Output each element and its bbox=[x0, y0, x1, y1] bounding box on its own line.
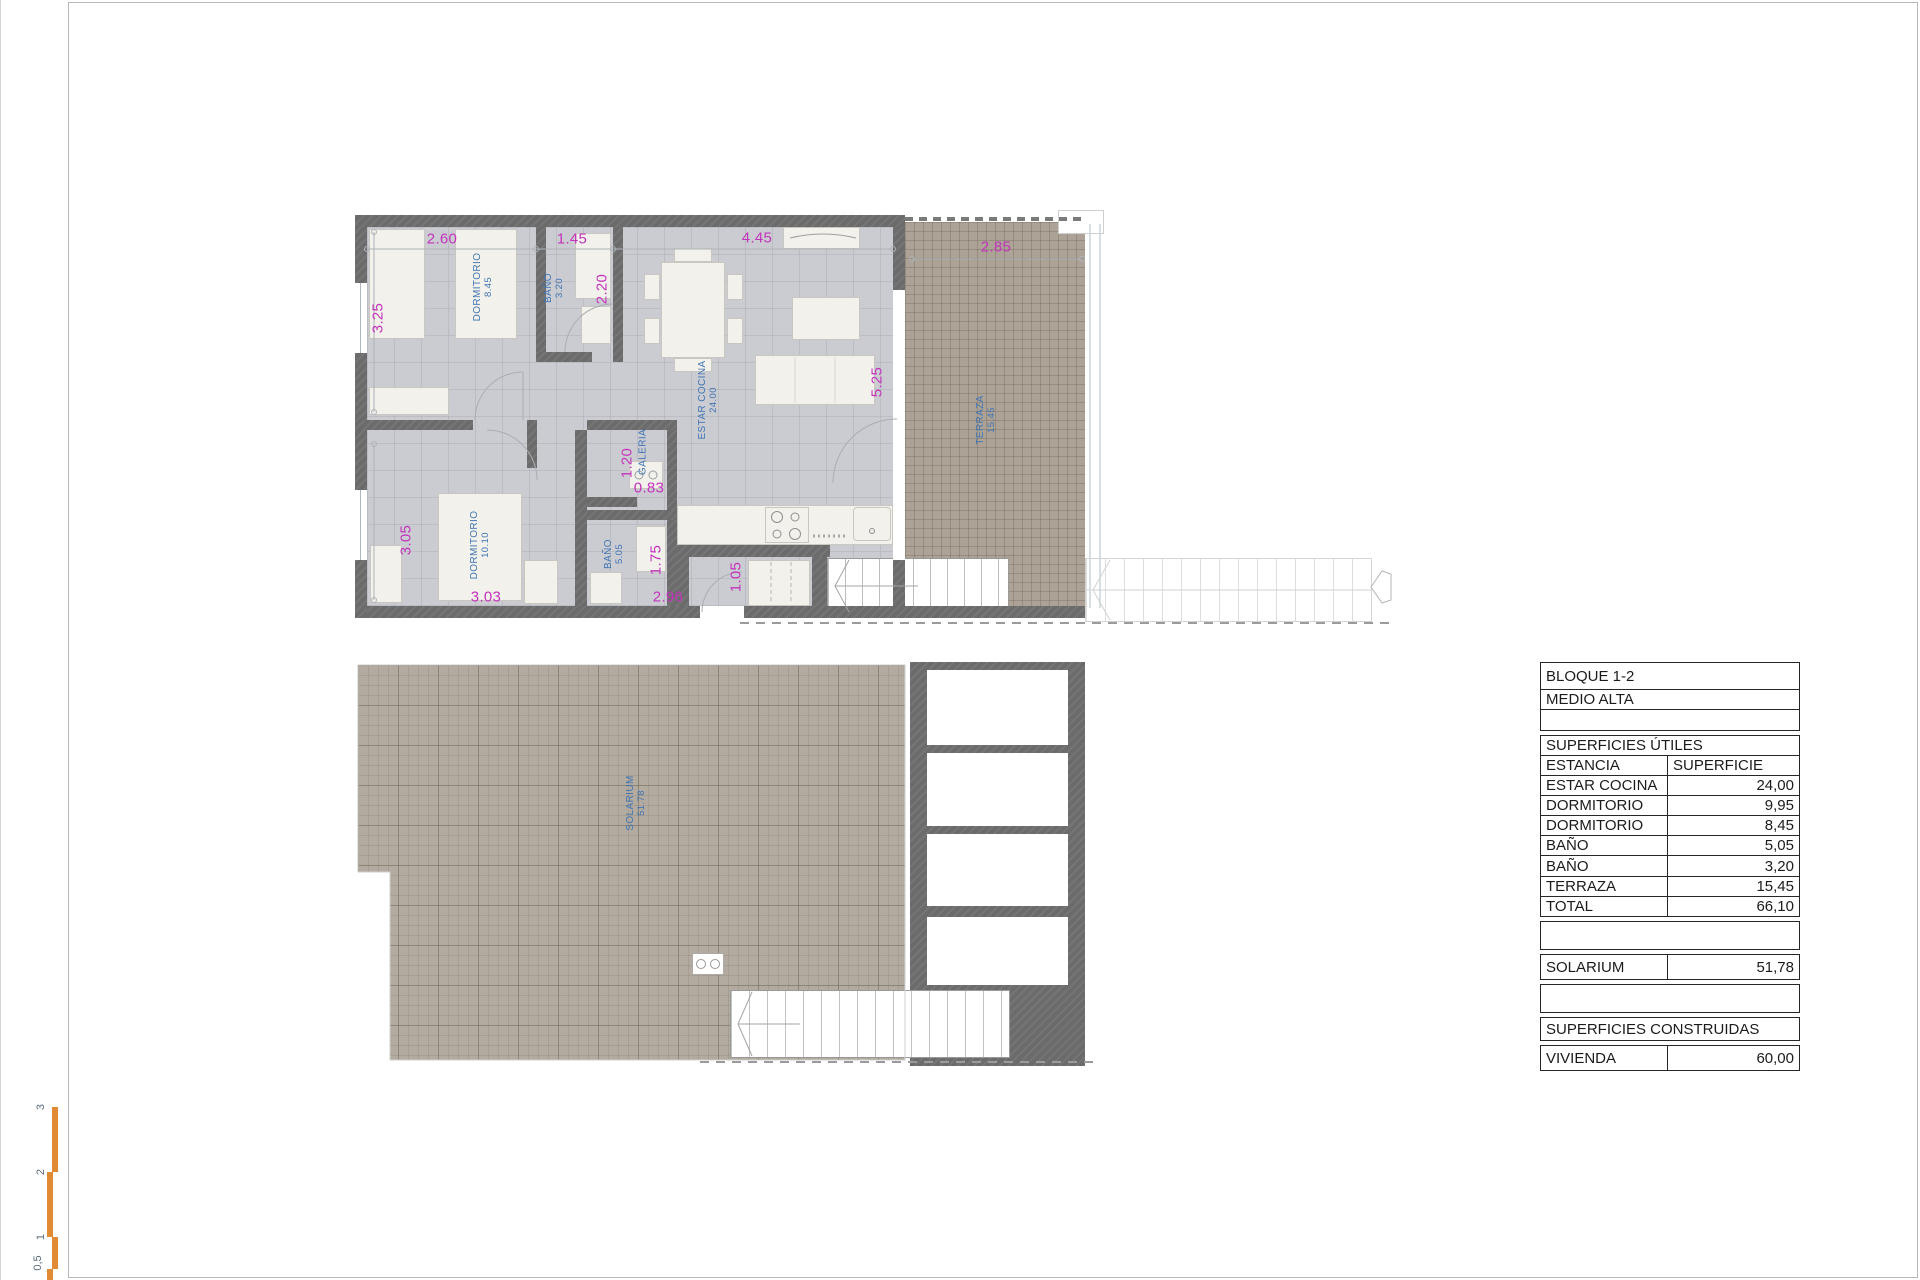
dining-table bbox=[661, 262, 725, 358]
dimension-text: 3.05 bbox=[398, 525, 415, 555]
wall bbox=[677, 545, 830, 557]
terrace-corner-box bbox=[1058, 210, 1104, 234]
scale-segment bbox=[47, 1172, 53, 1237]
table-empty-row bbox=[1540, 984, 1800, 1013]
dimension-text: 1.75 bbox=[648, 545, 665, 575]
upper-floor-plan bbox=[0, 0, 1920, 660]
table-row: TERRAZA15,45 bbox=[1540, 876, 1800, 897]
table-row: TOTAL66,10 bbox=[1540, 896, 1800, 917]
core-opening bbox=[927, 670, 1068, 745]
chair bbox=[727, 318, 743, 344]
chair bbox=[674, 248, 712, 262]
wall bbox=[355, 215, 905, 227]
wall bbox=[667, 430, 677, 520]
table-row: SOLARIUM51,78 bbox=[1540, 954, 1800, 980]
surface-table: BLOQUE 1-2 MEDIO ALTA SUPERFICIES ÚTILES… bbox=[1540, 663, 1800, 1071]
roof-vent-box bbox=[692, 953, 724, 975]
dimension-text: 2.96 bbox=[653, 589, 683, 606]
table-row: DORMITORIO8,45 bbox=[1540, 815, 1800, 836]
dimension-text: 4.45 bbox=[742, 230, 772, 247]
table-row: BAÑO3,20 bbox=[1540, 855, 1800, 877]
table-row: DORMITORIO9,95 bbox=[1540, 795, 1800, 816]
table-section-header: SUPERFICIES CONSTRUIDAS bbox=[1540, 1017, 1800, 1041]
table-row: BLOQUE 1-2 bbox=[1540, 662, 1800, 690]
core-opening bbox=[927, 834, 1068, 906]
room-label-galeria: GALERIA bbox=[638, 429, 649, 475]
chair bbox=[644, 274, 660, 300]
dimension-text: 2.20 bbox=[594, 274, 611, 304]
scale-tick-label: 1 bbox=[35, 1234, 47, 1240]
wall bbox=[893, 227, 905, 290]
wall bbox=[613, 227, 623, 362]
wall bbox=[536, 352, 592, 362]
bath2-toilet bbox=[590, 572, 622, 604]
window bbox=[353, 490, 366, 560]
room-label-estar-cocina: ESTAR COCINA24.00 bbox=[697, 360, 719, 439]
window bbox=[353, 283, 366, 353]
table-row: ESTAR COCINA24,00 bbox=[1540, 775, 1800, 796]
scale-segment bbox=[47, 1269, 53, 1280]
wall bbox=[587, 497, 637, 507]
wall bbox=[355, 560, 367, 618]
room-label-terraza: TERRAZA15.45 bbox=[975, 395, 997, 444]
stairs-upper-outer bbox=[1085, 558, 1372, 622]
dimension-text: 2.85 bbox=[981, 239, 1011, 256]
table-section-header: SUPERFICIES ÚTILES bbox=[1540, 735, 1800, 756]
scale-tick-label: 3 bbox=[35, 1104, 47, 1110]
table-empty-row bbox=[1540, 921, 1800, 950]
nightstand bbox=[524, 560, 558, 604]
drawing-sheet: 2.60 1.45 4.45 2.85 3.25 2.20 5.25 3.05 … bbox=[0, 0, 1920, 1280]
entry-closet bbox=[748, 560, 810, 606]
scale-tick-label: 0,5 bbox=[32, 1255, 44, 1270]
room-label-bano-1: BAÑO3.20 bbox=[543, 273, 565, 303]
chair bbox=[727, 274, 743, 300]
wall bbox=[587, 420, 677, 430]
cooktop bbox=[765, 507, 809, 543]
room-label-dormitorio-2: DORMITORIO10.10 bbox=[469, 511, 491, 580]
wall bbox=[812, 557, 827, 606]
dimension-text: 3.03 bbox=[471, 589, 501, 606]
table-row: MEDIO ALTA bbox=[1540, 689, 1800, 710]
wall bbox=[893, 560, 905, 606]
table-row: VIVIENDA60,00 bbox=[1540, 1045, 1800, 1071]
room-label-dormitorio-1: DORMITORIO8.45 bbox=[472, 253, 494, 322]
table-header-row: ESTANCIASUPERFICIE bbox=[1540, 755, 1800, 776]
dimension-text: 2.60 bbox=[427, 231, 457, 248]
chair bbox=[644, 318, 660, 344]
dresser-1 bbox=[369, 387, 449, 415]
scale-segment bbox=[52, 1107, 58, 1172]
dimension-text: 0.83 bbox=[634, 480, 664, 497]
wall bbox=[355, 215, 367, 283]
core-opening bbox=[927, 753, 1068, 826]
scale-segment bbox=[52, 1237, 58, 1269]
bath1-toilet bbox=[581, 306, 611, 344]
sofa bbox=[755, 355, 875, 405]
kitchen-sink bbox=[853, 507, 891, 541]
wall bbox=[527, 420, 537, 468]
dimension-text: 5.25 bbox=[869, 367, 886, 397]
table-row: BAÑO5,05 bbox=[1540, 835, 1800, 856]
coffee-table bbox=[792, 297, 860, 340]
dimension-text: 1.45 bbox=[557, 231, 587, 248]
entry-door-gap bbox=[700, 606, 744, 618]
terrace-glass-door bbox=[893, 290, 905, 560]
dimension-text: 3.25 bbox=[370, 303, 387, 333]
core-opening bbox=[927, 917, 1068, 985]
wall bbox=[587, 510, 677, 520]
room-label-bano-2: BAÑO5.05 bbox=[603, 539, 625, 569]
room-label-solarium: SOLARIUM51.78 bbox=[625, 775, 647, 830]
wall bbox=[575, 430, 587, 606]
dimension-text: 1.20 bbox=[619, 448, 636, 478]
tv-unit bbox=[783, 227, 860, 249]
wall bbox=[355, 420, 473, 430]
table-empty-row bbox=[1540, 709, 1800, 731]
stairs-lower bbox=[730, 990, 1010, 1058]
scale-tick-label: 2 bbox=[35, 1169, 47, 1175]
dimension-text: 1.05 bbox=[728, 562, 745, 592]
